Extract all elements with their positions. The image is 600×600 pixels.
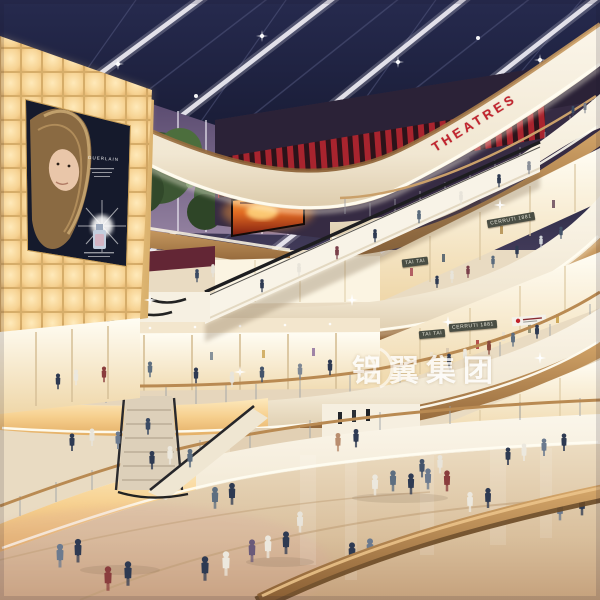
- mall-atrium-rendering: THEATRES CERRUTI 1881 TAI TAI CERRUTI 18…: [0, 0, 600, 600]
- perfume-billboard: [26, 100, 130, 266]
- left-lower-storefronts: [0, 318, 140, 414]
- watermark: 铝翼集团: [352, 346, 500, 390]
- watermark-logo: [352, 346, 398, 390]
